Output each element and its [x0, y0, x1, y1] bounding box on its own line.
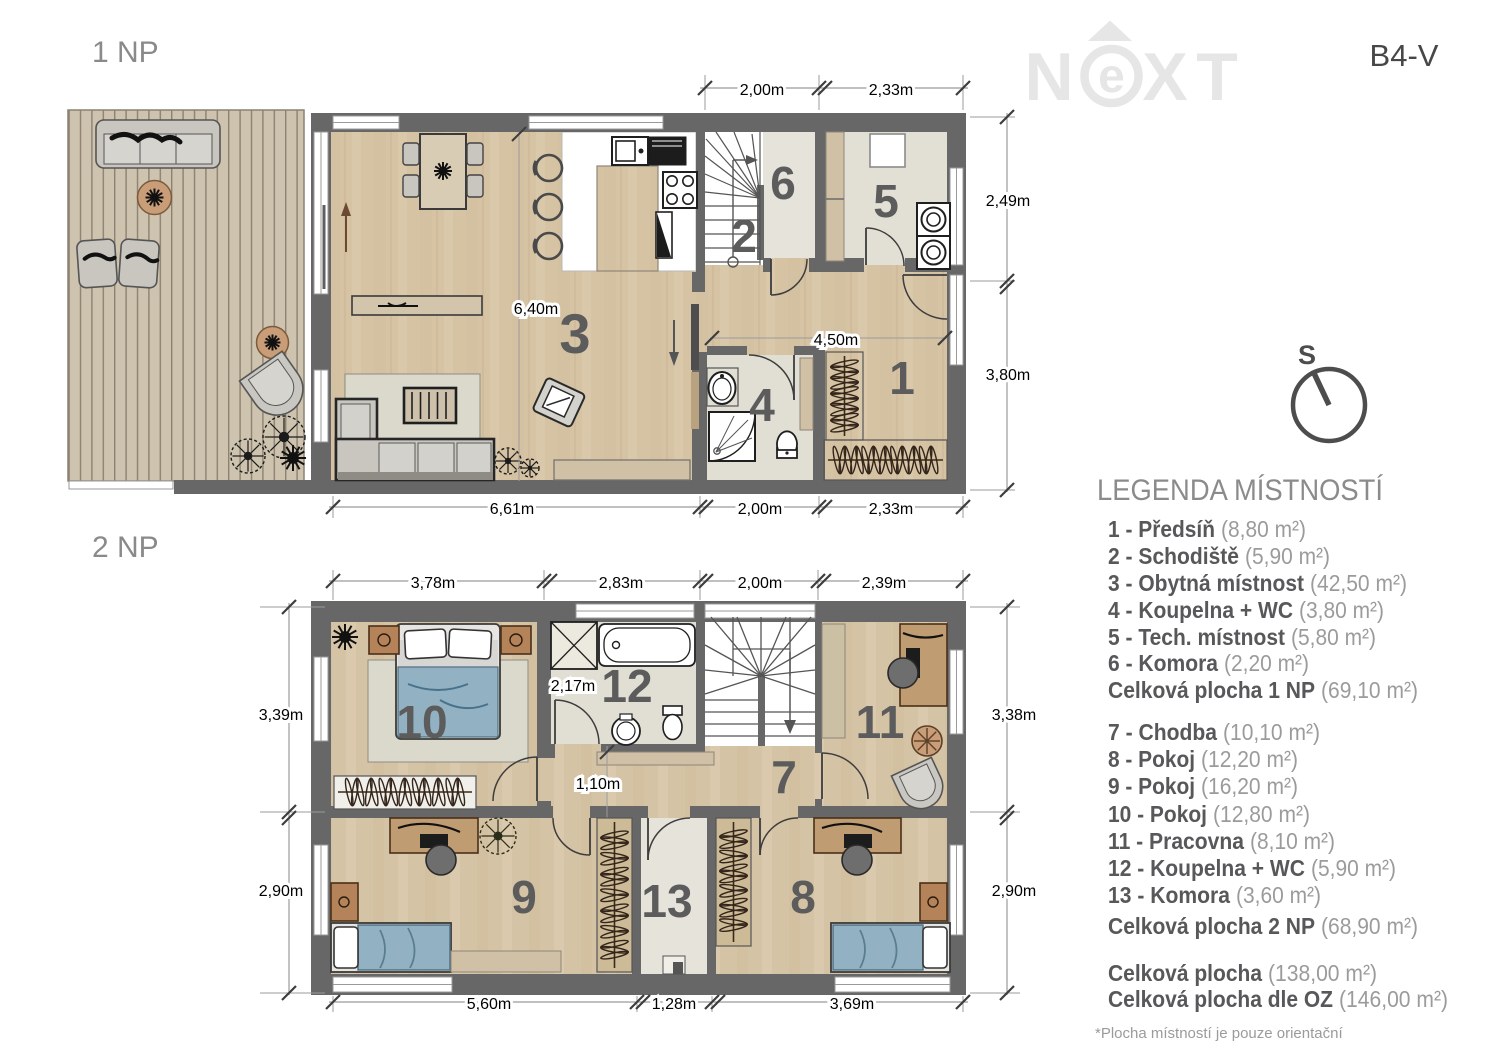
- svg-text:Celková plocha 1 NP: Celková plocha 1 NP: [1108, 677, 1315, 703]
- svg-text:11 - Pracovna: 11 - Pracovna: [1108, 828, 1244, 854]
- svg-text:4 - Koupelna + WC: 4 - Koupelna + WC: [1108, 597, 1293, 623]
- svg-text:5: 5: [873, 175, 899, 227]
- svg-text:3,39m: 3,39m: [259, 707, 303, 724]
- svg-text:6,61m: 6,61m: [490, 501, 534, 518]
- svg-text:e: e: [1098, 50, 1125, 103]
- svg-text:(146,00 m²): (146,00 m²): [1339, 986, 1448, 1012]
- svg-text:6: 6: [770, 157, 796, 209]
- svg-text:Celková plocha 2 NP: Celková plocha 2 NP: [1108, 913, 1315, 939]
- svg-text:12 - Koupelna + WC: 12 - Koupelna + WC: [1108, 855, 1305, 881]
- svg-text:2,90m: 2,90m: [259, 883, 303, 900]
- svg-text:8 - Pokoj: 8 - Pokoj: [1108, 746, 1195, 772]
- svg-text:T: T: [1196, 39, 1238, 115]
- svg-text:6 - Komora: 6 - Komora: [1108, 650, 1218, 676]
- svg-text:(16,20 m²): (16,20 m²): [1201, 773, 1298, 799]
- svg-text:(5,80 m²): (5,80 m²): [1291, 624, 1376, 650]
- svg-text:*Plocha místností je pouze ori: *Plocha místností je pouze orientační: [1095, 1025, 1343, 1042]
- svg-text:4,50m: 4,50m: [814, 332, 858, 349]
- svg-text:3 - Obytná místnost: 3 - Obytná místnost: [1108, 570, 1304, 596]
- svg-text:6,40m: 6,40m: [514, 301, 558, 318]
- svg-text:(5,90 m²): (5,90 m²): [1311, 855, 1396, 881]
- svg-text:13 - Komora: 13 - Komora: [1108, 882, 1230, 908]
- svg-text:3,78m: 3,78m: [411, 575, 455, 592]
- svg-text:1: 1: [889, 352, 915, 404]
- svg-text:5,60m: 5,60m: [467, 996, 511, 1013]
- svg-text:9: 9: [511, 871, 537, 923]
- svg-text:(68,90 m²): (68,90 m²): [1321, 913, 1418, 939]
- svg-text:1 NP: 1 NP: [92, 36, 159, 69]
- svg-text:(12,20 m²): (12,20 m²): [1201, 746, 1298, 772]
- svg-text:2,83m: 2,83m: [599, 575, 643, 592]
- svg-text:10 - Pokoj: 10 - Pokoj: [1108, 801, 1207, 827]
- svg-text:(2,20 m²): (2,20 m²): [1224, 650, 1309, 676]
- svg-text:1,10m: 1,10m: [576, 776, 620, 793]
- svg-text:(10,10 m²): (10,10 m²): [1223, 719, 1320, 745]
- svg-text:10: 10: [396, 696, 447, 748]
- svg-text:2,17m: 2,17m: [551, 678, 595, 695]
- svg-text:2,00m: 2,00m: [740, 82, 784, 99]
- svg-text:S: S: [1298, 340, 1316, 370]
- svg-text:Celková plocha dle OZ: Celková plocha dle OZ: [1108, 986, 1333, 1012]
- svg-text:12: 12: [601, 660, 652, 712]
- svg-text:2,00m: 2,00m: [738, 501, 782, 518]
- svg-text:(138,00 m²): (138,00 m²): [1268, 960, 1377, 986]
- svg-text:2: 2: [731, 210, 757, 262]
- svg-text:2,00m: 2,00m: [738, 575, 782, 592]
- svg-text:1,28m: 1,28m: [652, 996, 696, 1013]
- svg-text:7 - Chodba: 7 - Chodba: [1108, 719, 1217, 745]
- svg-text:2 NP: 2 NP: [92, 531, 159, 564]
- svg-text:(8,10 m²): (8,10 m²): [1250, 828, 1335, 854]
- svg-text:(3,80 m²): (3,80 m²): [1299, 597, 1384, 623]
- svg-text:(8,80 m²): (8,80 m²): [1221, 516, 1306, 542]
- svg-text:N: N: [1024, 39, 1073, 115]
- svg-text:13: 13: [641, 875, 692, 927]
- svg-text:3,80m: 3,80m: [986, 367, 1030, 384]
- svg-text:3,38m: 3,38m: [992, 707, 1036, 724]
- svg-text:5 - Tech. místnost: 5 - Tech. místnost: [1108, 624, 1285, 650]
- svg-text:3: 3: [559, 302, 590, 365]
- svg-text:1 - Předsíň: 1 - Předsíň: [1108, 516, 1215, 542]
- svg-text:2,39m: 2,39m: [862, 575, 906, 592]
- svg-text:2,33m: 2,33m: [869, 501, 913, 518]
- svg-text:Celková plocha: Celková plocha: [1108, 960, 1262, 986]
- svg-text:(5,90 m²): (5,90 m²): [1245, 543, 1330, 569]
- svg-text:2 - Schodiště: 2 - Schodiště: [1108, 543, 1239, 569]
- svg-text:X: X: [1142, 39, 1187, 115]
- svg-text:(42,50 m²): (42,50 m²): [1310, 570, 1407, 596]
- svg-text:2,33m: 2,33m: [869, 82, 913, 99]
- svg-text:(3,60 m²): (3,60 m²): [1236, 882, 1321, 908]
- svg-text:LEGENDA MÍSTNOSTÍ: LEGENDA MÍSTNOSTÍ: [1097, 474, 1384, 507]
- svg-text:2,90m: 2,90m: [992, 883, 1036, 900]
- svg-text:(69,10 m²): (69,10 m²): [1321, 677, 1418, 703]
- svg-text:7: 7: [771, 751, 797, 803]
- svg-text:3,69m: 3,69m: [830, 996, 874, 1013]
- svg-text:9 - Pokoj: 9 - Pokoj: [1108, 773, 1195, 799]
- svg-text:11: 11: [856, 696, 905, 748]
- svg-text:(12,80 m²): (12,80 m²): [1213, 801, 1310, 827]
- svg-text:2,49m: 2,49m: [986, 193, 1030, 210]
- svg-text:4: 4: [749, 379, 775, 431]
- svg-text:8: 8: [790, 871, 816, 923]
- svg-text:B4-V: B4-V: [1370, 38, 1439, 73]
